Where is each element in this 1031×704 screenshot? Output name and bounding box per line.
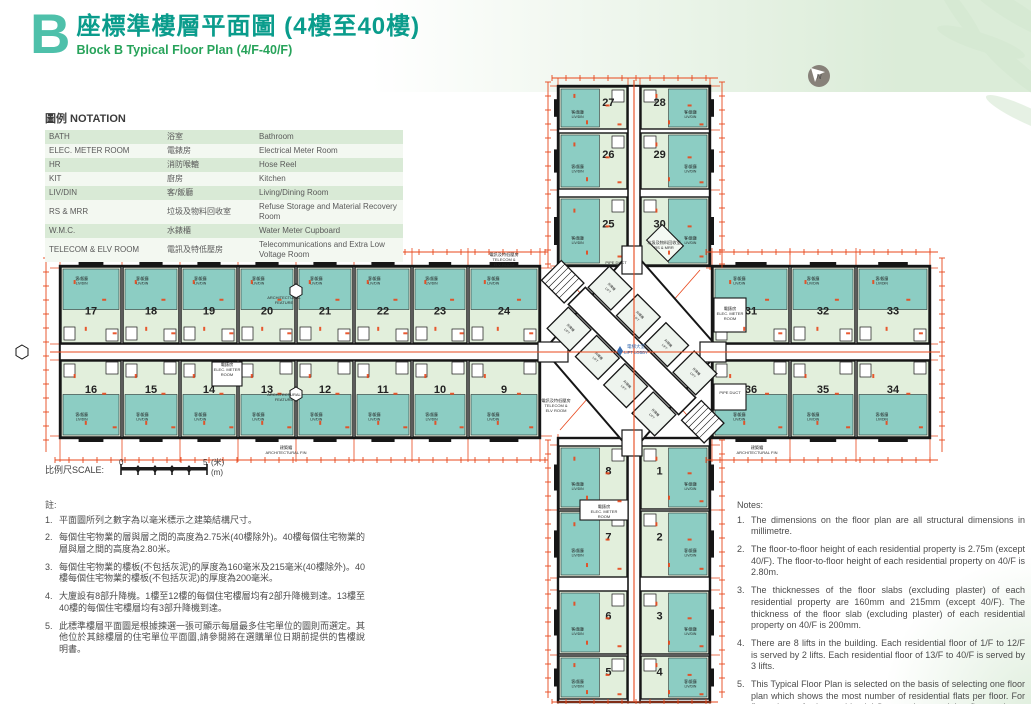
unit-18: 18客/飯廳LIV/DIN [123,262,179,343]
unit-number: 20 [261,305,273,317]
dimension-mark [586,177,588,181]
room-label-cn: 客/飯廳 [571,679,584,684]
dimension-mark [668,251,670,255]
unit-number: 6 [605,610,611,622]
dimension-mark [229,426,233,428]
notation-cell: W.M.C. [45,224,163,238]
unit-number: 1 [657,465,663,477]
balcony [878,262,908,267]
dimension-mark [606,104,610,106]
unit-number: 9 [501,384,507,396]
dimension-mark [74,374,76,378]
dimension-mark [377,421,379,425]
unit-number: 12 [319,384,331,396]
dimension-mark [700,123,704,125]
balcony [878,437,908,442]
room-label-en: LIV/DIN [252,282,264,286]
room-label-en: LIV/DIN [572,487,584,491]
unit-17: 17客/飯廳LIV/DIN [61,262,121,343]
bath-area [794,364,805,377]
notes-english: Notes: 1.The dimensions on the floor pla… [737,500,1025,704]
dimension-mark [74,280,76,284]
dimension-mark [309,374,311,378]
unit-number: 8 [605,465,611,477]
unit-number: 19 [203,305,215,317]
dimension-mark [573,663,575,667]
dimension-mark [251,280,253,284]
annotation: 電訊及特低壓房TELECOM &ELV ROOM [489,251,518,267]
annotation-en: ARCHITECTURAL FIN [737,450,778,455]
room-label-cn: 客/飯廳 [425,276,438,281]
unit-21: 21客/飯廳LIV/DIN [297,262,353,343]
livdin-area [669,658,708,697]
dimension-mark [886,327,888,331]
unit-number: 10 [434,384,446,396]
bath-area [860,327,871,340]
bath-area [472,364,483,377]
notation-cell: Telecommunications and Extra Low Voltage… [255,238,403,262]
unit-number: 23 [434,305,446,317]
room-label-cn: 客/飯廳 [571,626,584,631]
annotation-en: ARCHITECTURAL FIN [266,450,307,455]
unit-34: 34客/飯廳LIV/DIN [857,361,929,442]
dimension-mark [573,209,575,213]
unit-number: 15 [145,384,157,396]
notation-cell: Kitchen [255,172,403,186]
room-label-cn: 客/飯廳 [876,276,889,281]
unit-number: 22 [377,305,389,317]
notation-row: HR消防喉轆Hose Reel [45,158,403,172]
room-label-cn: 客/飯廳 [368,276,381,281]
annotation: PIPE DUCT [605,260,627,265]
block-letter: B [30,8,70,60]
unit-28: 28客/飯廳LIV/DIN [641,87,714,129]
balcony [735,262,766,267]
dimension-mark [367,280,369,284]
room-label-en: LIV/DIN [684,241,696,245]
dimension-mark [835,299,839,301]
dimension-mark [606,156,610,158]
note-item: 1.The dimensions on the floor plan are a… [737,515,1025,538]
kitchen-area [774,362,786,374]
unit-33: 33客/飯廳LIV/DIN [857,262,929,343]
notation-legend: 圖例 NOTATION BATH浴室BathroomELEC. METER RO… [45,110,403,262]
room-label-en: LIV/DIN [310,282,322,286]
lift-lobby-label-en: LIFT LOBBY [624,350,648,355]
livdin-area [561,135,600,187]
notation-cell: Hose Reel [255,158,403,172]
dimension-mark [700,693,704,695]
livdin-area [125,269,177,310]
room-label-cn: 客/飯廳 [684,626,697,631]
dimension-mark [700,500,704,502]
kitchen-area [222,329,234,341]
room-label-en: LIV/DIN [684,115,696,119]
dimension-mark [886,421,888,425]
dimension-mark [367,374,369,378]
notation-cell: 垃圾及物料回收室 [163,200,255,224]
dimension-mark [700,256,704,258]
kitchen-area [106,362,118,374]
dimension-mark [618,123,622,125]
kitchen-area [840,329,852,341]
dimension-mark [586,690,588,694]
balcony [810,262,836,267]
notation-cell: ELEC. METER ROOM [45,144,163,158]
room-label-cn: 客/飯廳 [310,412,323,417]
balcony [554,99,559,117]
dimension-mark [606,225,610,227]
unit-25: 25客/飯廳LIV/DIN [554,197,627,265]
room-label-cn: 客/飯廳 [571,548,584,553]
dimension-mark [586,641,588,645]
notation-row: BATH浴室Bathroom [45,130,403,144]
dimension-mark [85,327,87,331]
dimension-mark [219,299,223,301]
balcony [139,437,162,442]
dimension-mark [618,568,622,570]
dimension-mark [618,256,622,258]
balcony [709,217,714,245]
bath-area [644,449,656,461]
kitchen-area [164,362,176,374]
notation-cell: 水錶櫃 [163,224,255,238]
dimension-mark [586,251,588,255]
room-label-en: LIV/DIN [572,241,584,245]
notation-cell: 客/飯廳 [163,186,255,200]
livdin-area [125,394,177,435]
unit-24: 24客/飯廳LIV/DIN [469,262,539,343]
room-label-cn: 客/飯廳 [252,276,265,281]
scale-bar: 比例尺SCALE: 0 5 (米) (m) [45,456,237,482]
livdin-area [793,394,853,435]
dimension-mark [345,426,349,428]
note-item: 4.大廈設有8部升降機。1樓至12樓的每個住宅樓層均有2部升降機到達。13樓至4… [45,591,365,614]
note-item: 3.The thicknesses of the floor slabs (ex… [737,585,1025,632]
dimension-mark [919,426,923,428]
kitchen-area [106,329,118,341]
room-label-cn: 客/飯廳 [487,412,500,417]
unit-number: 31 [745,305,757,317]
dimension-mark [450,299,454,301]
notation-cell: 電錶房 [163,144,255,158]
notation-cell: 消防喉轆 [163,158,255,172]
room-label-en: LIV/DIN [684,169,696,173]
kitchen-area [280,362,292,374]
dimension-mark [319,421,321,425]
annotation-en: ELV ROOM [546,408,567,413]
livdin-area [63,394,119,435]
balcony [313,262,336,267]
unit-number: 28 [653,97,665,109]
dimension-mark [668,120,670,124]
bath-area [644,659,656,671]
balcony [709,530,714,557]
unit-number: 4 [657,666,664,678]
room-label-en: LIV/DIN [684,487,696,491]
bath-area [472,327,483,340]
dimension-mark [688,225,692,227]
note-item: 2.The floor-to-floor height of each resi… [737,544,1025,579]
dimension-mark [171,426,175,428]
kitchen-area [774,329,786,341]
notation-row: W.M.C.水錶櫃Water Meter Cupboard [45,224,403,238]
room-label-cn: 客/飯廳 [684,481,697,486]
note-item: 4.There are 8 lifts in the building. Eac… [737,638,1025,673]
room-label-en: LIV/DIN [572,169,584,173]
dimension-mark [335,393,339,395]
dimension-mark [529,332,533,334]
balcony [429,262,451,267]
dimension-mark [287,332,291,334]
dimension-mark [872,280,874,284]
bath-area [612,659,624,671]
balcony [139,262,162,267]
unit-10: 10客/飯廳LIV/DIN [413,361,467,442]
livdin-area [183,394,235,435]
notation-cell: HR [45,158,163,172]
room-label-cn: 客/飯廳 [368,412,381,417]
room-label-cn: 客/飯廳 [75,412,88,417]
livdin-area [669,89,708,127]
scale-label: 比例尺SCALE: [45,463,104,476]
room-label-en: LIV/DIN [876,282,888,286]
dimension-mark [668,177,670,181]
dimension-mark [700,181,704,183]
unit-1: 1客/飯廳LIV/DIN [641,446,714,509]
notation-row: LIV/DIN客/飯廳Living/Dining Room [45,186,403,200]
balcony [490,437,519,442]
livdin-area [357,269,409,310]
dimension-mark [586,563,588,567]
notation-cell: 廚房 [163,172,255,186]
dimension-mark [835,393,839,395]
balcony [554,610,559,636]
room-label-cn: 客/飯廳 [310,276,323,281]
balcony [709,465,714,491]
room-label-cn: 客/飯廳 [487,276,500,281]
dimension-mark [668,690,670,694]
dimension-mark [688,156,692,158]
bath-area [612,136,624,148]
dimension-mark [517,299,521,301]
dimension-mark [171,332,175,334]
room-label-cn: 客/飯廳 [571,109,584,114]
dimension-mark [573,94,575,98]
unit-number: 3 [657,610,663,622]
annotation-en: ELV ROOM [494,262,515,267]
livdin-area [561,448,600,507]
balcony [255,437,278,442]
unit-number: 35 [817,384,829,396]
dimension-mark [846,426,850,428]
dimension-mark [424,374,426,378]
livdin-area [471,269,537,310]
room-label-cn: 客/飯廳 [194,412,207,417]
unit-number: 34 [887,384,900,396]
room-label-en: LIV/DIN [733,282,745,286]
note-item: 3.每個住宅物業的樓板(不包括灰泥)的厚度為160毫米及215毫米(40樓除外)… [45,562,365,585]
room-label-en: LIV/DIN [684,684,696,688]
page-title-chinese: 座標準樓層平面圖 (4樓至40樓) [76,12,420,42]
livdin-area [669,593,708,652]
unit-number: 27 [602,97,614,109]
unit-number: 36 [745,384,757,396]
unit-7: 7客/飯廳LIV/DIN [554,511,627,577]
unit-number: 18 [145,305,157,317]
dimension-mark [193,374,195,378]
kitchen-area [452,362,464,374]
bath-area [644,514,656,526]
dimension-mark [606,674,610,676]
dimension-mark [586,120,588,124]
note-item: 5.此標準樓層平面圖是根據揀選一張可顯示每層最多住宅單位的圖則而選定。其他位於其… [45,621,365,656]
annotation-en: ROOM [221,372,233,377]
dimension-mark [906,393,910,395]
dimension-mark [729,374,731,378]
livdin-area [471,394,537,435]
dimension-mark [805,374,807,378]
room-label-cn: 客/飯廳 [75,276,88,281]
bath-area [126,327,137,340]
room-label-en: LIV/DIN [426,282,438,286]
livdin-area [561,593,600,652]
dimension-mark [434,327,436,331]
dimension-mark [529,426,533,428]
annotation: 建築鰭ARCHITECTURAL FIN [266,444,307,455]
dimension-mark [497,327,499,331]
bath-area [716,364,727,377]
notation-cell: LIV/DIN [45,186,163,200]
notation-cell: KIT [45,172,163,186]
dimension-mark [729,280,731,284]
dimension-mark [688,472,692,474]
livdin-area [561,89,600,127]
room-label-cn: 客/飯廳 [425,412,438,417]
unit-number: 24 [498,305,511,317]
dimension-mark [618,645,622,647]
room-label-cn: 客/飯廳 [136,276,149,281]
balcony [197,262,220,267]
dimension-mark [193,280,195,284]
unit-11: 11客/飯廳LIV/DIN [355,361,411,442]
dimension-mark [618,181,622,183]
dimension-mark [688,617,692,619]
notation-cell: TELECOM & ELV ROOM [45,238,163,262]
bath-area [64,327,75,340]
unit-19: 19客/飯廳LIV/DIN [181,262,237,343]
room-label-cn: 客/飯廳 [571,481,584,486]
balcony [709,610,714,636]
dimension-mark [700,568,704,570]
dimension-mark [700,645,704,647]
scale-bar-graphic: 0 5 (米) (m) [107,456,237,482]
balcony [709,149,714,172]
room-label-en: LIV/DIN [136,282,148,286]
dimension-mark [102,299,106,301]
unit-6: 6客/飯廳LIV/DIN [554,591,627,654]
dimension-mark [460,332,464,334]
room-label-cn: 客/飯廳 [807,412,820,417]
livdin-area [669,135,708,187]
bath-area [860,364,871,377]
room-label-cn: 客/飯廳 [733,276,746,281]
unit-number: 32 [817,305,829,317]
dimension-mark [606,617,610,619]
page-header: B 座標準樓層平面圖 (4樓至40樓) Block B Typical Floo… [30,8,420,60]
balcony [554,217,559,245]
dimension-mark [668,641,670,645]
room-label-en: LIV/DIN [684,632,696,636]
dimension-mark [319,327,321,331]
notation-cell: Water Meter Cupboard [255,224,403,238]
dimension-mark [102,393,106,395]
bath-area [358,327,369,340]
livdin-area [415,394,465,435]
dimension-mark [655,602,657,606]
bath-area [612,200,624,212]
livdin-area [183,269,235,310]
dimension-mark [434,421,436,425]
kitchen-area [338,329,350,341]
room-label-cn: 客/飯廳 [136,412,149,417]
dimension-mark [161,393,165,395]
bath-area [644,136,656,148]
notation-cell: 浴室 [163,130,255,144]
dimension-mark [135,374,137,378]
room-label-cn: 客/飯廳 [684,109,697,114]
balcony [313,437,336,442]
dimension-mark [484,374,486,378]
note-item: 1.平面圖所列之數字為以毫米標示之建築結構尺寸。 [45,515,365,527]
brochure-page: { "header": { "block_letter": "B", "titl… [0,0,1031,704]
bath-area [184,327,195,340]
dimension-mark [145,421,147,425]
notation-row: ELEC. METER ROOM電錶房Electrical Meter Room [45,144,403,158]
balcony [255,262,278,267]
dimension-mark [846,332,850,334]
notes-english-title: Notes: [737,500,1025,512]
room-label-cn: 客/飯廳 [684,548,697,553]
livdin-area [299,269,351,310]
kitchen-area [524,329,536,341]
room-label-cn: 客/飯廳 [571,164,584,169]
dimension-mark [113,332,117,334]
dimension-mark [743,327,745,331]
room-label-en: LIV/DIN [487,282,499,286]
scale-unit-cn: (米) [211,457,225,467]
north-arrow-icon: N [805,62,833,95]
unit-number: 21 [319,305,331,317]
livdin-area [859,269,927,310]
core-link [622,430,642,456]
dimension-mark [655,457,657,461]
livdin-area [561,513,600,575]
notation-cell: Refuse Storage and Material Recovery Roo… [255,200,403,224]
notation-table: BATH浴室BathroomELEC. METER ROOM電錶房Electri… [45,130,403,262]
dimension-mark [765,299,769,301]
balcony [709,669,714,687]
notes-chinese-title: 註: [45,500,365,512]
room-label-cn: 客/飯廳 [571,235,584,240]
dimension-mark [618,693,622,695]
dimension-mark [778,332,782,334]
unit-number: 11 [377,384,389,396]
bath-area [644,594,656,606]
room-label-cn: 客/飯廳 [684,164,697,169]
unit-27: 27客/飯廳LIV/DIN [554,87,627,129]
balcony [554,149,559,172]
